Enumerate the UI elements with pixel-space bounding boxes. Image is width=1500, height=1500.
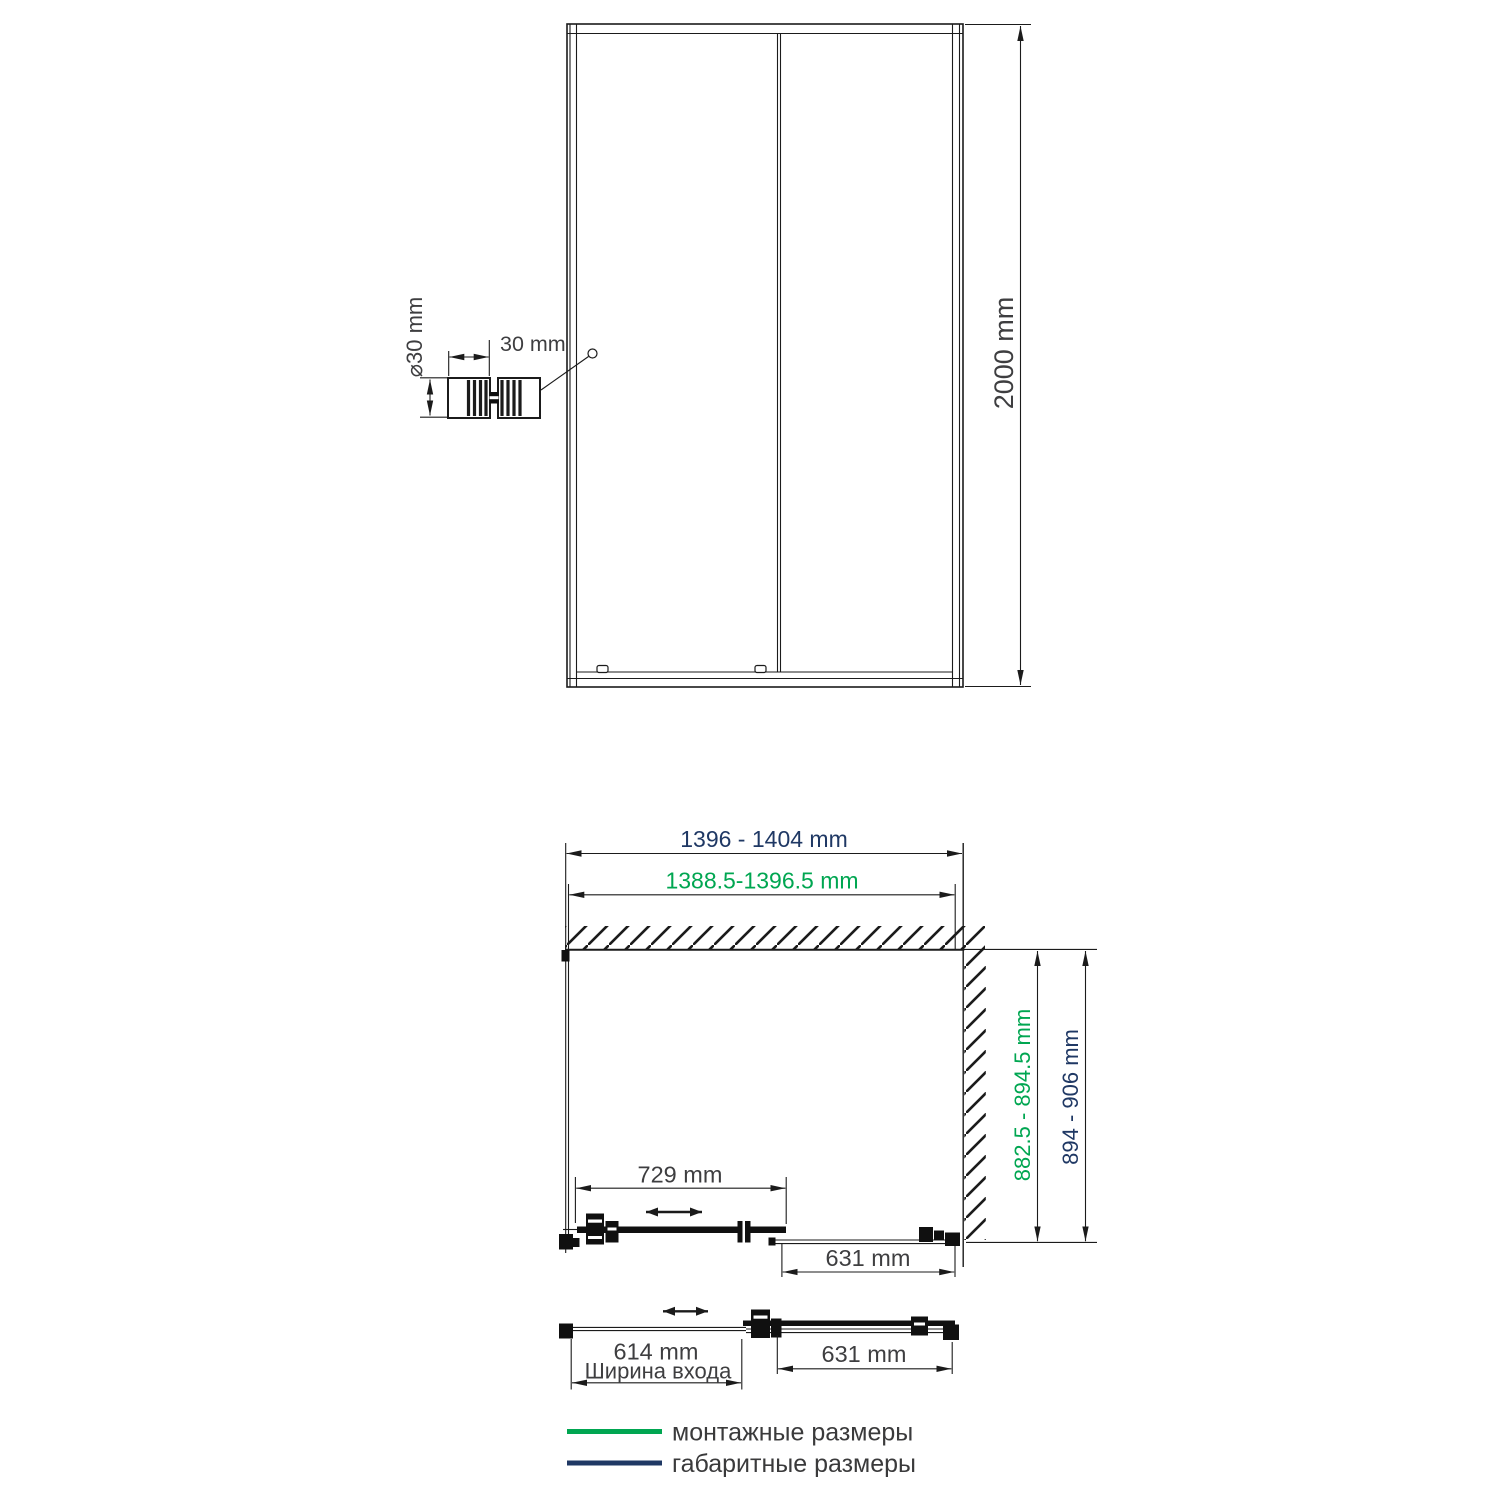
mounting-width-dimension: 1388.5-1396.5 mm bbox=[569, 868, 956, 1236]
height-dimension: 2000 mm bbox=[965, 25, 1031, 687]
handle-detail bbox=[448, 378, 540, 418]
height-label: 2000 mm bbox=[989, 297, 1019, 410]
handle-diameter-label: ⌀30 mm bbox=[402, 297, 427, 377]
entry-width-caption: Ширина входа bbox=[585, 1359, 733, 1384]
handle-diameter-dimension: ⌀30 mm bbox=[402, 297, 447, 417]
handle-width-label: 30 mm bbox=[500, 332, 566, 356]
bottom-guide-block bbox=[597, 666, 608, 673]
entry-width-dimension: 614 mm Ширина входа bbox=[571, 1339, 742, 1390]
handle-width-dimension: 30 mm bbox=[449, 332, 566, 376]
legend: монтажные размеры габаритные размеры bbox=[567, 1419, 916, 1479]
handle-leader-line bbox=[541, 357, 589, 391]
plan-view-open: 614 mm Ширина входа 631 mm bbox=[559, 1310, 959, 1390]
mounting-depth-dimension: 882.5 - 894.5 mm bbox=[1010, 951, 1038, 1241]
mounting-width-label: 1388.5-1396.5 mm bbox=[665, 868, 858, 894]
drawing-canvas: ⌀30 mm 30 mm 2000 mm 1396 - 1404 mm 1388… bbox=[0, 0, 1500, 1500]
bottom-guide-block bbox=[755, 666, 766, 673]
technical-drawing: ⌀30 mm 30 mm 2000 mm 1396 - 1404 mm 1388… bbox=[0, 0, 1500, 1500]
overall-width-label: 1396 - 1404 mm bbox=[680, 826, 847, 852]
fixed-panel-width-dimension-open: 631 mm bbox=[777, 1335, 952, 1374]
front-view: ⌀30 mm 30 mm 2000 mm bbox=[402, 24, 1031, 687]
side-wall-hatch bbox=[964, 950, 986, 1240]
mounting-depth-label: 882.5 - 894.5 mm bbox=[1010, 1009, 1035, 1181]
left-wall-profile-stub bbox=[562, 950, 570, 962]
fixed-panel-width-dimension: 631 mm bbox=[782, 1243, 955, 1277]
fixed-panel-width-open-label: 631 mm bbox=[822, 1341, 907, 1367]
slide-panel-width-dimension: 729 mm bbox=[575, 1162, 786, 1225]
handle-mount-circle bbox=[588, 349, 597, 358]
top-wall-hatch bbox=[565, 926, 985, 950]
legend-overall-label: габаритные размеры bbox=[672, 1450, 916, 1478]
sliding-door-open bbox=[559, 1310, 959, 1341]
slide-panel-width-label: 729 mm bbox=[638, 1162, 723, 1188]
overall-depth-dimension: 894 - 906 mm bbox=[1058, 951, 1086, 1241]
top-wall bbox=[562, 926, 986, 962]
legend-mounting-label: монтажные размеры bbox=[672, 1419, 913, 1447]
overall-depth-label: 894 - 906 mm bbox=[1058, 1029, 1083, 1165]
plan-view-closed: 1396 - 1404 mm 1388.5-1396.5 mm 882.5 - … bbox=[559, 826, 1097, 1277]
front-frame bbox=[567, 24, 963, 687]
fixed-panel-width-label: 631 mm bbox=[826, 1245, 911, 1271]
